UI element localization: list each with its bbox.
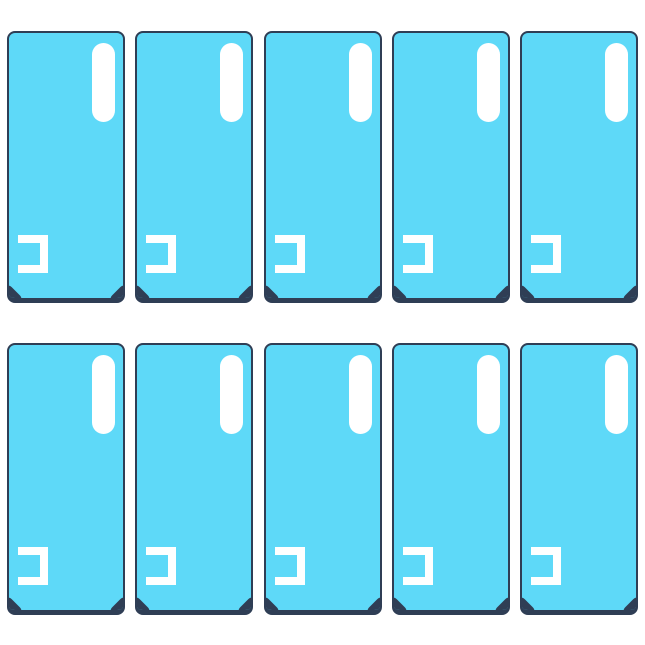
alignment-bracket-cutout bbox=[146, 235, 176, 273]
bottom-left-corner-notch bbox=[520, 595, 537, 615]
bottom-right-corner-notch bbox=[108, 283, 125, 303]
camera-cutout-pill bbox=[477, 43, 500, 122]
alignment-bracket-cutout bbox=[531, 547, 561, 585]
bottom-right-corner-notch bbox=[621, 283, 638, 303]
bottom-left-corner-notch bbox=[7, 595, 24, 615]
camera-cutout-pill bbox=[92, 43, 115, 122]
adhesive-sticker bbox=[135, 343, 253, 615]
bottom-right-corner-notch bbox=[493, 283, 510, 303]
bottom-left-corner-notch bbox=[135, 283, 152, 303]
camera-cutout-pill bbox=[477, 355, 500, 434]
camera-cutout-pill bbox=[92, 355, 115, 434]
sticker-row bbox=[7, 31, 638, 303]
adhesive-sticker bbox=[392, 31, 510, 303]
bottom-left-corner-notch bbox=[135, 595, 152, 615]
bottom-right-corner-notch bbox=[365, 595, 382, 615]
alignment-bracket-cutout bbox=[403, 235, 433, 273]
adhesive-sticker bbox=[135, 31, 253, 303]
camera-cutout-pill bbox=[349, 43, 372, 122]
bottom-right-corner-notch bbox=[237, 595, 254, 615]
product-photo bbox=[0, 0, 645, 645]
alignment-bracket-cutout bbox=[146, 547, 176, 585]
adhesive-sticker bbox=[520, 31, 638, 303]
bottom-left-corner-notch bbox=[392, 595, 409, 615]
bottom-left-corner-notch bbox=[7, 283, 24, 303]
bottom-right-corner-notch bbox=[621, 595, 638, 615]
bottom-left-corner-notch bbox=[520, 283, 537, 303]
alignment-bracket-cutout bbox=[403, 547, 433, 585]
bottom-left-corner-notch bbox=[264, 283, 281, 303]
bottom-left-corner-notch bbox=[392, 283, 409, 303]
camera-cutout-pill bbox=[605, 355, 628, 434]
bottom-right-corner-notch bbox=[365, 283, 382, 303]
alignment-bracket-cutout bbox=[531, 235, 561, 273]
sticker-row bbox=[7, 343, 638, 615]
adhesive-sticker bbox=[520, 343, 638, 615]
bottom-right-corner-notch bbox=[237, 283, 254, 303]
adhesive-sticker bbox=[264, 343, 382, 615]
adhesive-sticker bbox=[7, 31, 125, 303]
camera-cutout-pill bbox=[220, 355, 243, 434]
bottom-left-corner-notch bbox=[264, 595, 281, 615]
adhesive-sticker bbox=[264, 31, 382, 303]
sticker-grid bbox=[7, 31, 638, 615]
bottom-right-corner-notch bbox=[493, 595, 510, 615]
alignment-bracket-cutout bbox=[18, 235, 48, 273]
adhesive-sticker bbox=[392, 343, 510, 615]
bottom-right-corner-notch bbox=[108, 595, 125, 615]
alignment-bracket-cutout bbox=[275, 235, 305, 273]
camera-cutout-pill bbox=[605, 43, 628, 122]
camera-cutout-pill bbox=[349, 355, 372, 434]
adhesive-sticker bbox=[7, 343, 125, 615]
alignment-bracket-cutout bbox=[275, 547, 305, 585]
alignment-bracket-cutout bbox=[18, 547, 48, 585]
camera-cutout-pill bbox=[220, 43, 243, 122]
